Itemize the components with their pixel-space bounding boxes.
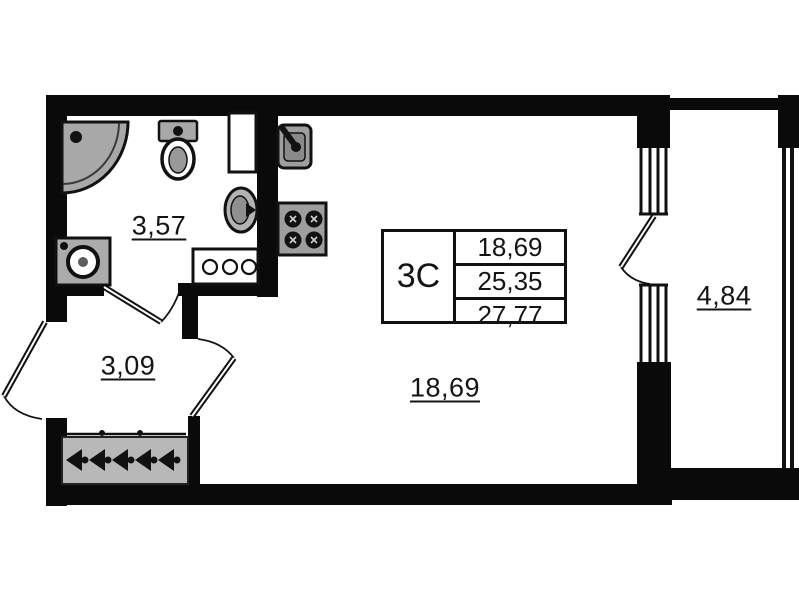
bathroom-door (104, 287, 180, 322)
balcony-glazing (784, 148, 792, 468)
window-glazing-lower (639, 284, 668, 362)
entrance-door (4, 322, 45, 419)
unit-area-row-overall: 27,77 (456, 297, 564, 331)
stove-icon (278, 203, 326, 255)
counter-knobs (193, 249, 258, 284)
hall-area-label: 3,09 (101, 351, 156, 382)
toilet-icon (159, 121, 197, 179)
living-area-label: 18,69 (410, 373, 480, 404)
wardrobe (62, 430, 188, 484)
window-glazing-upper (639, 148, 668, 215)
balcony-door (621, 216, 654, 284)
unit-area-rows: 18,69 25,35 27,77 (456, 232, 564, 321)
bathroom-area-label: 3,57 (132, 211, 187, 242)
washing-machine-icon (56, 238, 110, 285)
unit-area-row-living: 18,69 (456, 232, 564, 263)
vent-duct (229, 113, 256, 172)
shower-icon (62, 122, 128, 193)
kitchen-sink-icon (278, 125, 311, 168)
balcony-area-label: 4,84 (697, 281, 752, 312)
unit-area-row-total: 25,35 (456, 263, 564, 297)
room-door (192, 339, 234, 416)
bathroom-sink-icon (225, 188, 257, 232)
unit-summary-table: 3C 18,69 25,35 27,77 (381, 229, 567, 324)
floor-plan: 3,57 3,09 18,69 4,84 3C 18,69 25,35 27,7… (0, 0, 799, 600)
unit-type-cell: 3C (384, 232, 456, 321)
